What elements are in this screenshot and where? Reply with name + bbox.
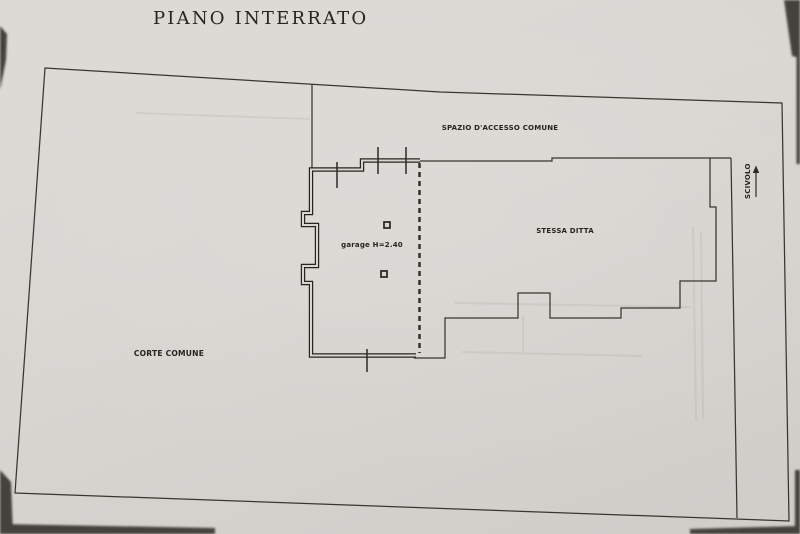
garage-walls bbox=[303, 161, 420, 356]
label-access-space: SPAZIO D'ACCESSO COMUNE bbox=[442, 124, 559, 132]
floor-plan-drawing: SPAZIO D'ACCESSO COMUNE STESSA DITTA gar… bbox=[0, 0, 800, 534]
scan-edge-artifacts bbox=[0, 0, 800, 534]
label-corte-comune: CORTE COMUNE bbox=[134, 349, 204, 358]
ramp-direction-arrow bbox=[753, 166, 759, 198]
scanned-floor-plan-page: PIANO INTERRATO bbox=[0, 0, 800, 534]
label-scivolo-ramp: SCIVOLO bbox=[744, 163, 752, 199]
plot-boundary bbox=[15, 68, 789, 521]
ramp-corridor-line bbox=[731, 158, 737, 518]
label-stessa-ditta: STESSA DITTA bbox=[536, 227, 594, 235]
building-outline-top bbox=[419, 158, 731, 161]
label-garage-height: garage H=2.40 bbox=[341, 241, 403, 249]
column-square bbox=[384, 222, 390, 228]
column-square bbox=[381, 271, 387, 277]
building-outline-right-bottom bbox=[414, 158, 716, 358]
wall-opening-ticks bbox=[337, 147, 406, 372]
